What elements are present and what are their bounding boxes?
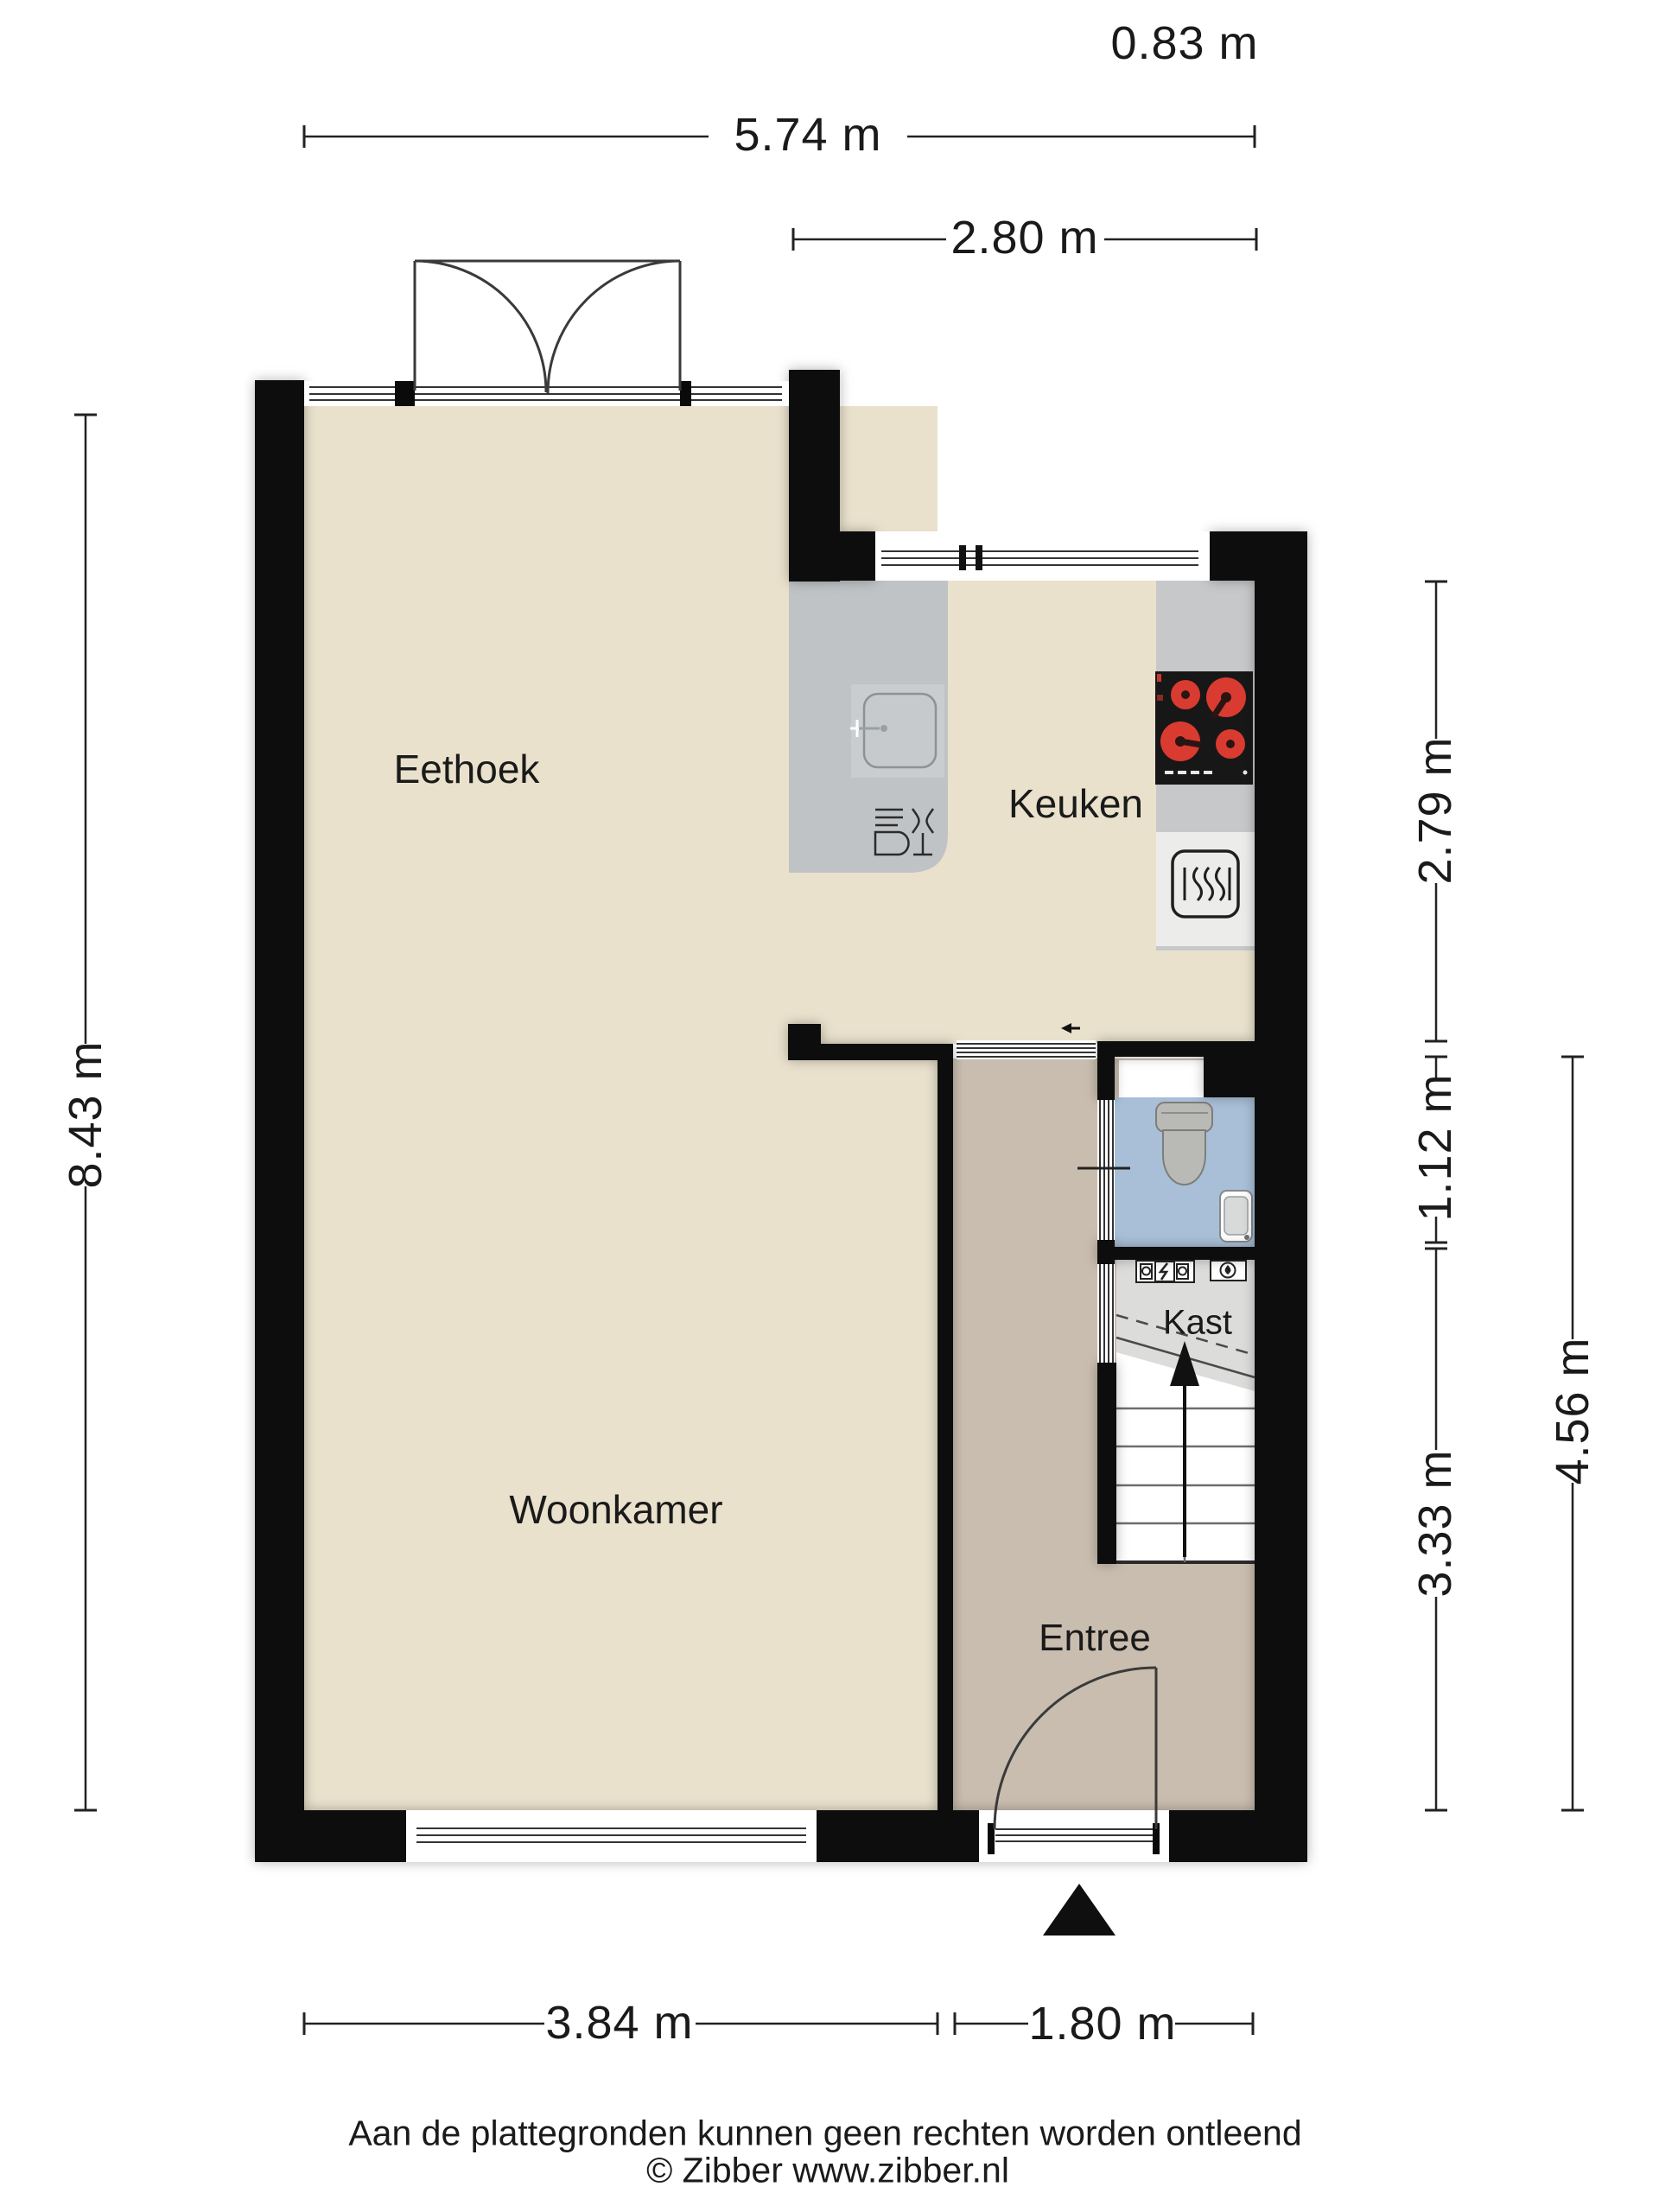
stove-icon	[1155, 671, 1253, 785]
window-kitchen	[875, 531, 1210, 581]
water-heater-icon	[1211, 1261, 1246, 1281]
window-kitchen-hall	[957, 1040, 1096, 1059]
dim-top-width: 5.74 m	[734, 108, 881, 162]
wall-end-nub	[788, 1024, 821, 1046]
cistern-shelf	[1119, 1060, 1204, 1097]
wall-stairs-left	[1097, 1363, 1116, 1564]
footer-copyright: © Zibber www.zibber.nl	[646, 2151, 1009, 2191]
wall-kitchen-top-stub	[840, 531, 875, 581]
wall-kitchen-hall	[788, 1044, 953, 1060]
entrance-triangle-icon	[1043, 1884, 1116, 1935]
dim-entree-total-height: 4.56 m	[1546, 1337, 1599, 1484]
dim-top-right-small: 0.83 m	[1110, 16, 1258, 70]
footer-disclaimer: Aan de plattegronden kunnen geen rechten…	[348, 2113, 1301, 2154]
dim-left-height: 8.43 m	[59, 1040, 112, 1188]
dim-entree-width: 1.80 m	[1028, 1997, 1176, 2050]
wall-duct-block	[1204, 1041, 1255, 1097]
room-label-closet: Kast	[1163, 1304, 1232, 1343]
dim-kitchen-height: 2.79 m	[1408, 736, 1462, 884]
wall-left	[255, 380, 304, 1862]
boiler-icon	[1136, 1261, 1194, 1282]
door-swing-arc-icon	[548, 261, 680, 393]
dim-toilet-height: 1.12 m	[1408, 1073, 1462, 1221]
dim-living-width: 3.84 m	[545, 1996, 693, 2050]
wall-living-hall-divider	[938, 1060, 953, 1810]
floorplan-page: 0.83 m 5.74 m 2.80 m 8.43 m 2.79 m 1.12 …	[0, 0, 1659, 2212]
dim-hall-height: 3.33 m	[1408, 1449, 1462, 1597]
dim-kitchen-width: 2.80 m	[950, 211, 1098, 264]
wall-toilet-left-upper	[1097, 1041, 1115, 1100]
room-label-dining: Eethoek	[394, 746, 540, 792]
wall-right	[1255, 531, 1307, 1862]
wall-toilet-bottom	[1097, 1247, 1255, 1260]
door-swing-arc-icon	[415, 261, 546, 392]
front-door-opening	[979, 1810, 1169, 1862]
window-living	[406, 1810, 817, 1862]
washbasin-icon	[1220, 1191, 1252, 1242]
room-label-entry: Entree	[1039, 1617, 1151, 1660]
room-label-living: Woonkamer	[509, 1486, 722, 1533]
door-closet	[1097, 1264, 1115, 1363]
french-doors	[415, 261, 680, 393]
room-label-kitchen: Keuken	[1008, 780, 1143, 827]
wall-dining-right	[789, 370, 840, 582]
oven-icon	[1156, 832, 1255, 946]
